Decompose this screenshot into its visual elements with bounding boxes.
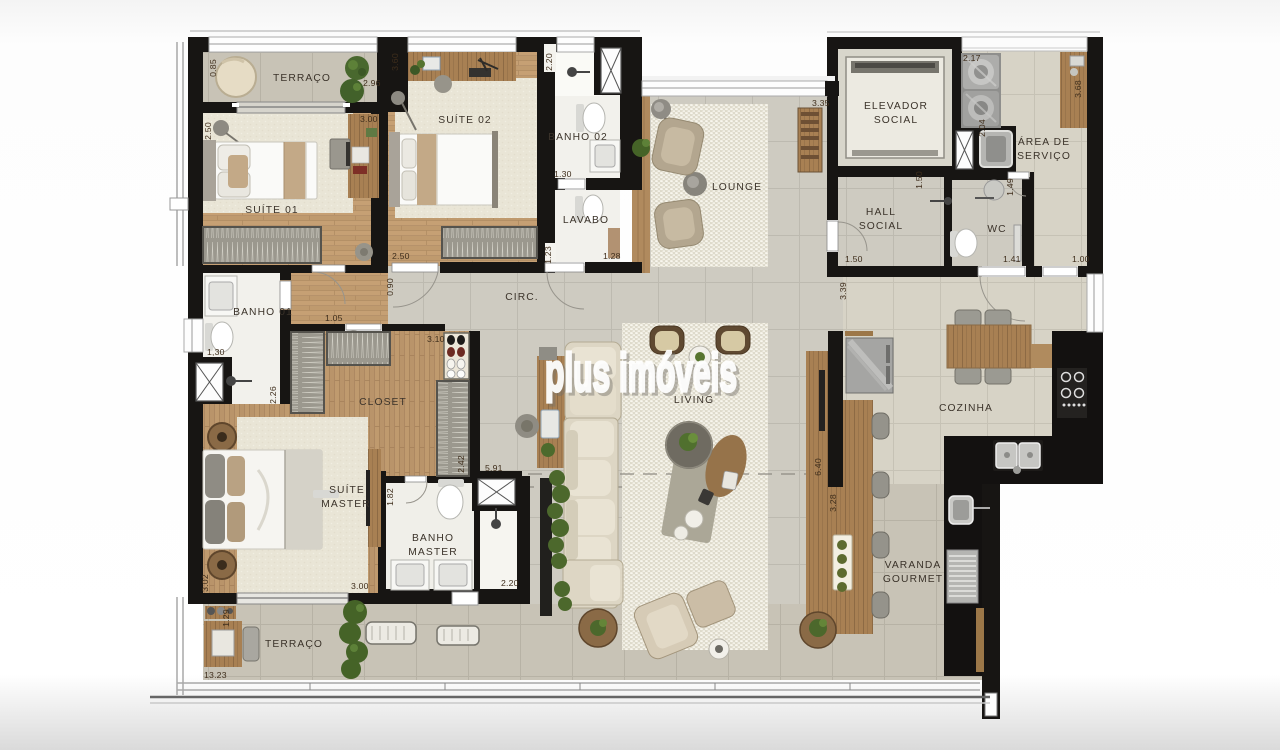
svg-text:1,30: 1,30 bbox=[207, 347, 225, 357]
svg-text:MASTER: MASTER bbox=[408, 547, 458, 558]
svg-text:SERVIÇO: SERVIÇO bbox=[1017, 151, 1071, 162]
svg-text:LOUNGE: LOUNGE bbox=[712, 182, 762, 193]
svg-text:2.17: 2.17 bbox=[963, 53, 981, 63]
svg-text:3.39: 3.39 bbox=[838, 282, 848, 300]
svg-text:GOURMET: GOURMET bbox=[883, 574, 943, 585]
svg-text:SOCIAL: SOCIAL bbox=[874, 115, 918, 126]
svg-text:3.60: 3.60 bbox=[390, 53, 400, 71]
svg-text:2.20: 2.20 bbox=[544, 53, 554, 71]
svg-text:1.41: 1.41 bbox=[1003, 254, 1021, 264]
svg-text:1.29: 1.29 bbox=[221, 609, 231, 627]
svg-text:0.90: 0.90 bbox=[385, 278, 395, 296]
svg-text:1.23: 1.23 bbox=[543, 246, 553, 264]
svg-text:SUÍTE 02: SUÍTE 02 bbox=[438, 113, 491, 126]
svg-text:2.96: 2.96 bbox=[363, 78, 381, 88]
svg-text:LAVABO: LAVABO bbox=[563, 215, 609, 226]
svg-text:SUÍTE 01: SUÍTE 01 bbox=[245, 203, 298, 216]
svg-text:6.40: 6.40 bbox=[813, 458, 823, 476]
svg-text:COZINHA: COZINHA bbox=[939, 403, 993, 414]
svg-text:MASTER: MASTER bbox=[321, 499, 371, 510]
svg-text:plus imóveis: plus imóveis bbox=[545, 343, 737, 403]
svg-text:1.30: 1.30 bbox=[554, 169, 572, 179]
svg-text:TERRAÇO: TERRAÇO bbox=[265, 639, 323, 650]
svg-text:1.00: 1.00 bbox=[1072, 254, 1090, 264]
svg-text:VARANDA: VARANDA bbox=[885, 560, 942, 571]
svg-text:2.50: 2.50 bbox=[203, 122, 213, 140]
svg-text:CLOSET: CLOSET bbox=[359, 397, 407, 408]
svg-text:CIRC.: CIRC. bbox=[505, 292, 539, 303]
svg-text:1.49: 1.49 bbox=[1005, 178, 1015, 196]
svg-text:2.26: 2.26 bbox=[268, 386, 278, 404]
svg-text:BANHO: BANHO bbox=[412, 533, 454, 544]
svg-text:WC: WC bbox=[987, 224, 1006, 235]
svg-text:BANHO 02: BANHO 02 bbox=[548, 132, 608, 143]
svg-text:3.02: 3.02 bbox=[200, 574, 210, 592]
svg-text:2.42: 2.42 bbox=[456, 455, 466, 473]
svg-text:TERRAÇO: TERRAÇO bbox=[273, 73, 331, 84]
svg-text:BANHO 01: BANHO 01 bbox=[233, 307, 293, 318]
svg-text:3.35: 3.35 bbox=[812, 98, 830, 108]
svg-text:ELEVADOR: ELEVADOR bbox=[864, 101, 928, 112]
svg-text:3.00: 3.00 bbox=[360, 114, 378, 124]
svg-text:3.00: 3.00 bbox=[351, 581, 369, 591]
svg-text:3.68: 3.68 bbox=[1073, 80, 1083, 98]
svg-text:SUÍTE: SUÍTE bbox=[329, 483, 365, 496]
svg-text:1.05: 1.05 bbox=[325, 313, 343, 323]
svg-text:0.85: 0.85 bbox=[208, 59, 218, 77]
svg-text:HALL: HALL bbox=[866, 207, 896, 218]
svg-text:ÁREA DE: ÁREA DE bbox=[1018, 135, 1070, 148]
svg-text:SOCIAL: SOCIAL bbox=[859, 221, 903, 232]
svg-text:1.50: 1.50 bbox=[845, 254, 863, 264]
svg-text:1.50: 1.50 bbox=[914, 171, 924, 189]
svg-text:13.23: 13.23 bbox=[204, 670, 227, 680]
svg-text:2.04: 2.04 bbox=[977, 119, 987, 137]
svg-text:5.91: 5.91 bbox=[485, 463, 503, 473]
svg-text:3.28: 3.28 bbox=[828, 494, 838, 512]
svg-text:3.10: 3.10 bbox=[427, 334, 445, 344]
svg-text:1.82: 1.82 bbox=[385, 488, 395, 506]
svg-text:1.28: 1.28 bbox=[603, 251, 621, 261]
svg-text:2.50: 2.50 bbox=[392, 251, 410, 261]
svg-text:2.20: 2.20 bbox=[501, 578, 519, 588]
